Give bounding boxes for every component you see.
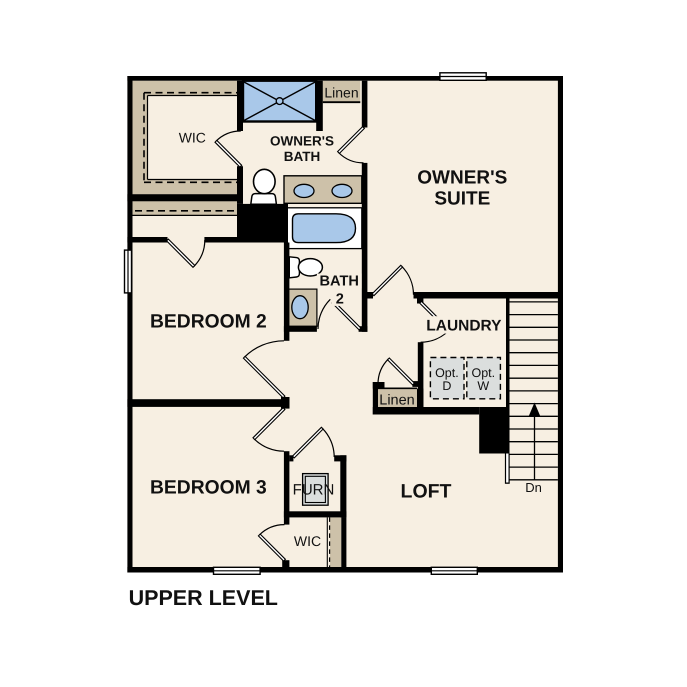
svg-text:W: W (477, 379, 489, 393)
svg-text:SUITE: SUITE (434, 189, 490, 210)
svg-text:FURN: FURN (293, 482, 335, 499)
svg-text:BATH: BATH (284, 149, 321, 164)
svg-text:BEDROOM 2: BEDROOM 2 (150, 312, 267, 333)
svg-text:OWNER'S: OWNER'S (270, 134, 334, 149)
svg-text:D: D (442, 379, 451, 393)
svg-text:OWNER'S: OWNER'S (417, 168, 507, 189)
svg-text:WIC: WIC (294, 533, 321, 549)
svg-text:Linen: Linen (379, 392, 414, 408)
svg-text:BATH: BATH (319, 274, 358, 290)
svg-text:BEDROOM 3: BEDROOM 3 (150, 478, 267, 499)
svg-text:UPPER LEVEL: UPPER LEVEL (129, 586, 278, 610)
svg-text:Linen: Linen (324, 85, 358, 101)
svg-text:WIC: WIC (179, 130, 206, 146)
svg-text:LOFT: LOFT (401, 480, 452, 502)
svg-text:2: 2 (336, 291, 344, 307)
svg-text:Dn: Dn (525, 480, 542, 495)
svg-text:LAUNDRY: LAUNDRY (426, 317, 502, 334)
